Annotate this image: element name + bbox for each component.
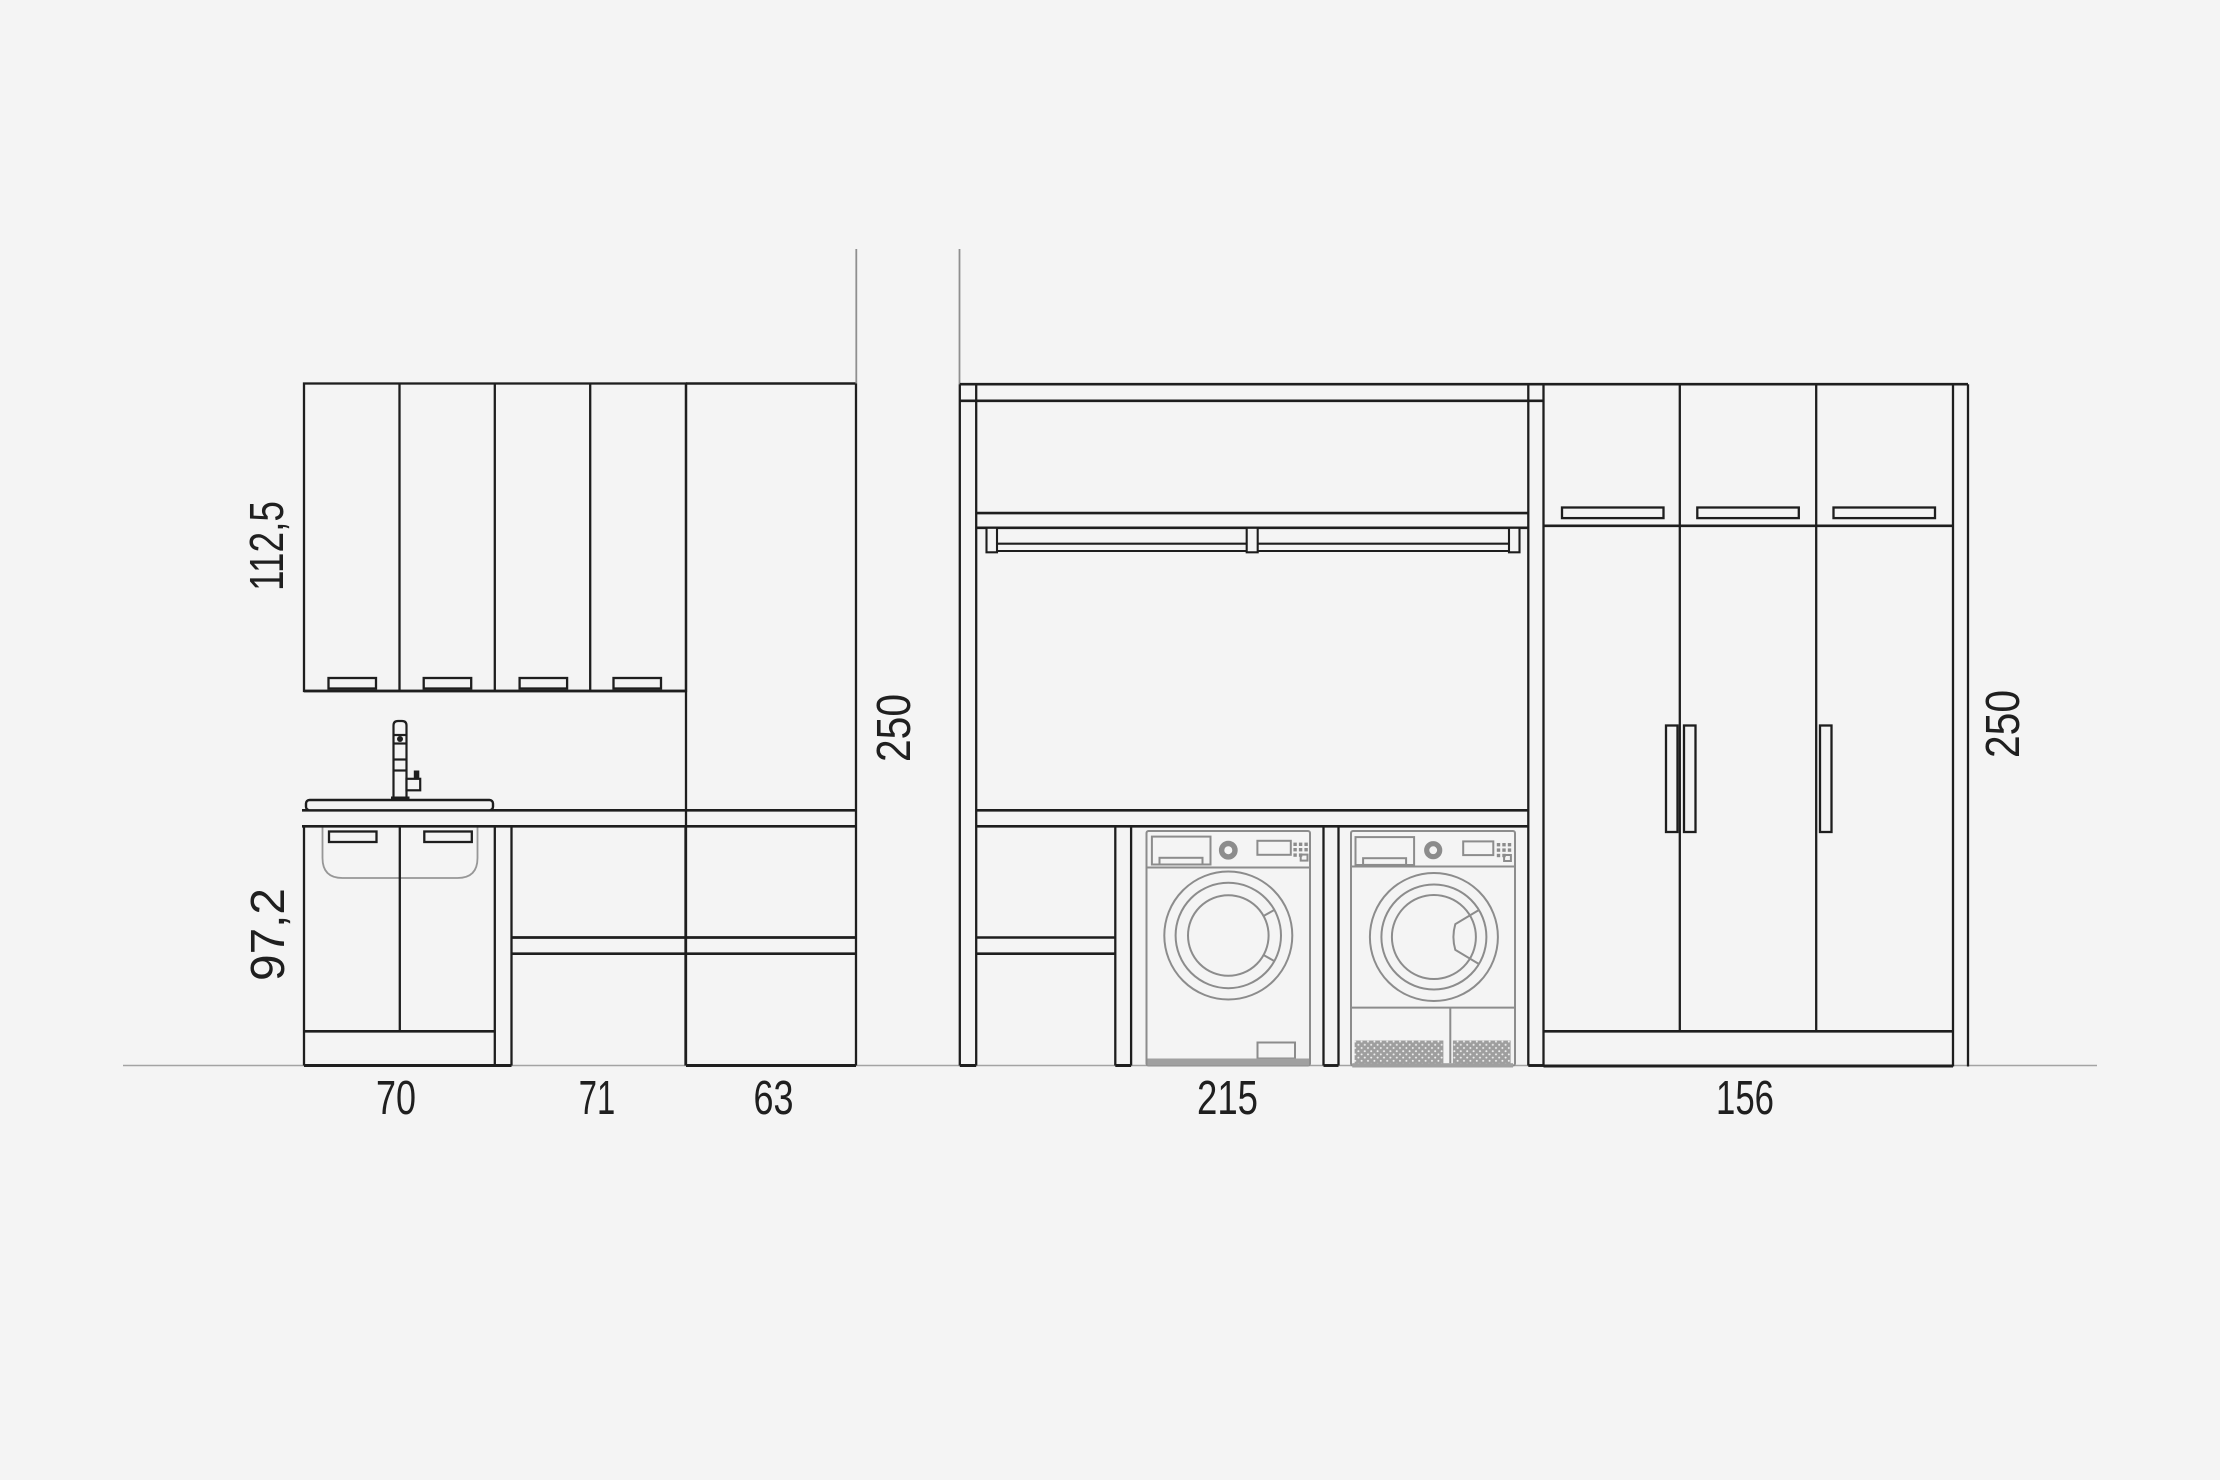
svg-text:250: 250 (868, 694, 921, 762)
svg-text:71: 71 (579, 1072, 616, 1125)
svg-text:156: 156 (1716, 1072, 1774, 1125)
svg-text:63: 63 (754, 1072, 794, 1125)
svg-text:215: 215 (1197, 1072, 1258, 1125)
svg-text:97,2: 97,2 (242, 888, 295, 981)
svg-text:70: 70 (376, 1072, 416, 1125)
svg-text:112,5: 112,5 (241, 501, 294, 591)
svg-text:250: 250 (1977, 690, 2030, 758)
